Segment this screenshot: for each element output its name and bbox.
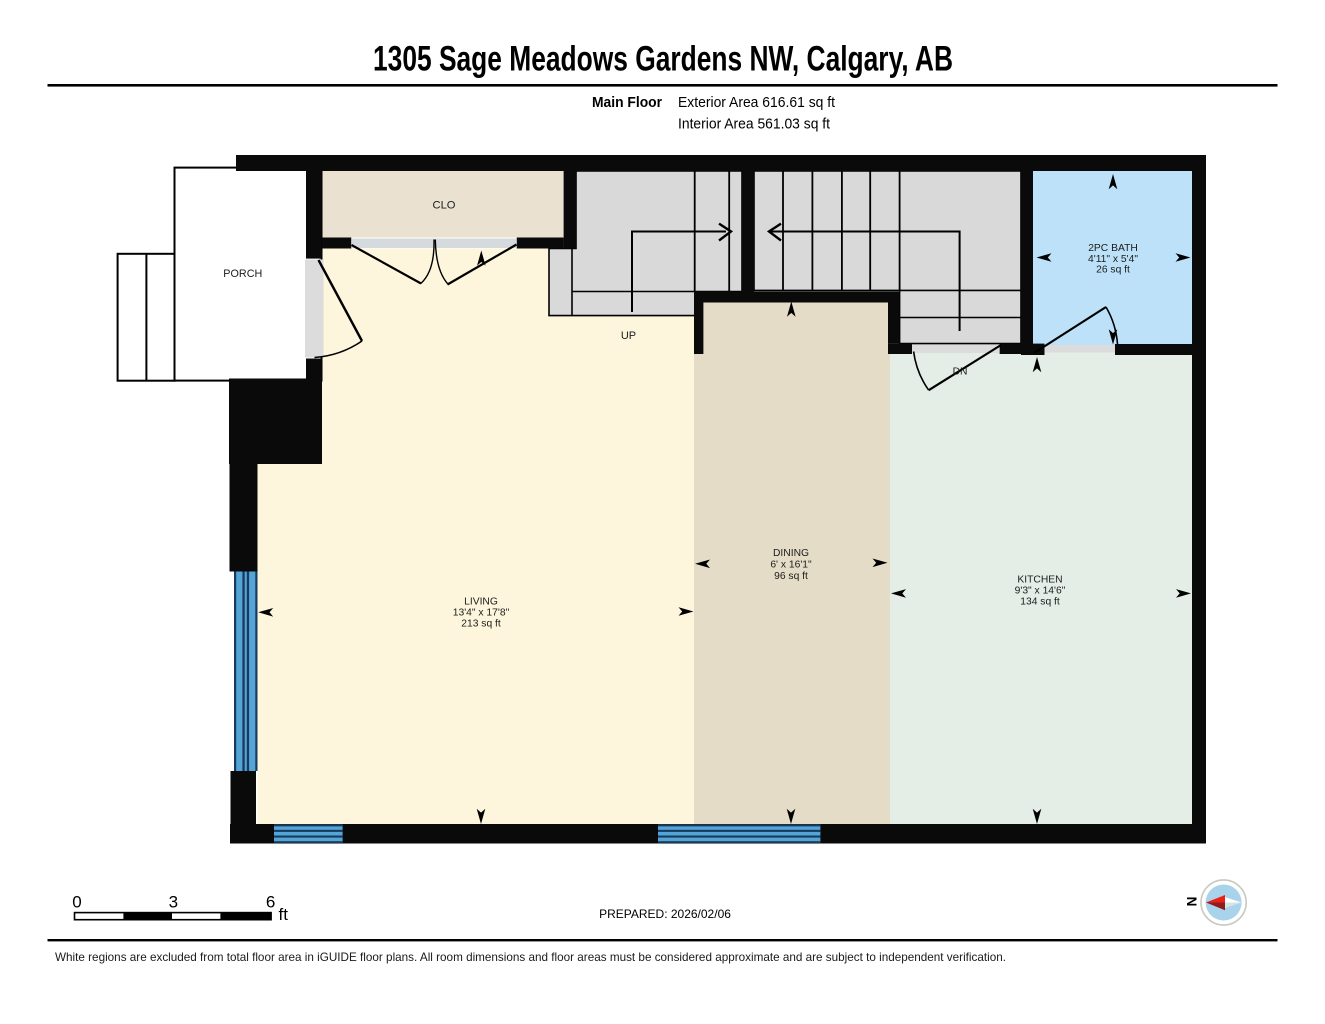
svg-text:Main Floor: Main Floor [592, 94, 662, 111]
svg-text:3: 3 [169, 893, 178, 912]
svg-text:134 sq ft: 134 sq ft [1020, 597, 1060, 608]
svg-text:6' x 16'1": 6' x 16'1" [770, 560, 812, 571]
svg-text:DN: DN [953, 367, 968, 378]
svg-text:213 sq ft: 213 sq ft [461, 619, 501, 630]
svg-text:PREPARED: 2026/02/06: PREPARED: 2026/02/06 [599, 907, 731, 921]
svg-text:PORCH: PORCH [223, 268, 262, 280]
svg-text:Interior Area 561.03 sq ft: Interior Area 561.03 sq ft [678, 116, 831, 133]
svg-text:96 sq ft: 96 sq ft [774, 571, 808, 582]
svg-text:LIVING: LIVING [464, 597, 498, 608]
svg-text:UP: UP [621, 330, 636, 342]
svg-text:ft: ft [279, 905, 289, 924]
svg-text:DINING: DINING [773, 548, 809, 559]
svg-text:N: N [1184, 897, 1199, 907]
svg-text:4'11" x 5'4": 4'11" x 5'4" [1088, 254, 1138, 265]
svg-text:13'4" x 17'8": 13'4" x 17'8" [453, 608, 510, 619]
svg-text:Exterior Area 616.61 sq ft: Exterior Area 616.61 sq ft [678, 94, 836, 111]
svg-text:1305 Sage Meadows Gardens NW,: 1305 Sage Meadows Gardens NW, Calgary, A… [373, 40, 953, 79]
svg-text:CLO: CLO [432, 200, 455, 212]
svg-text:0: 0 [72, 893, 81, 912]
svg-text:2PC BATH: 2PC BATH [1088, 243, 1138, 254]
svg-text:6: 6 [266, 893, 275, 912]
svg-text:White regions are excluded fro: White regions are excluded from total fl… [55, 950, 1006, 964]
svg-text:9'3" x 14'6": 9'3" x 14'6" [1015, 586, 1066, 597]
svg-text:26 sq ft: 26 sq ft [1096, 265, 1130, 276]
svg-text:KITCHEN: KITCHEN [1017, 575, 1062, 586]
